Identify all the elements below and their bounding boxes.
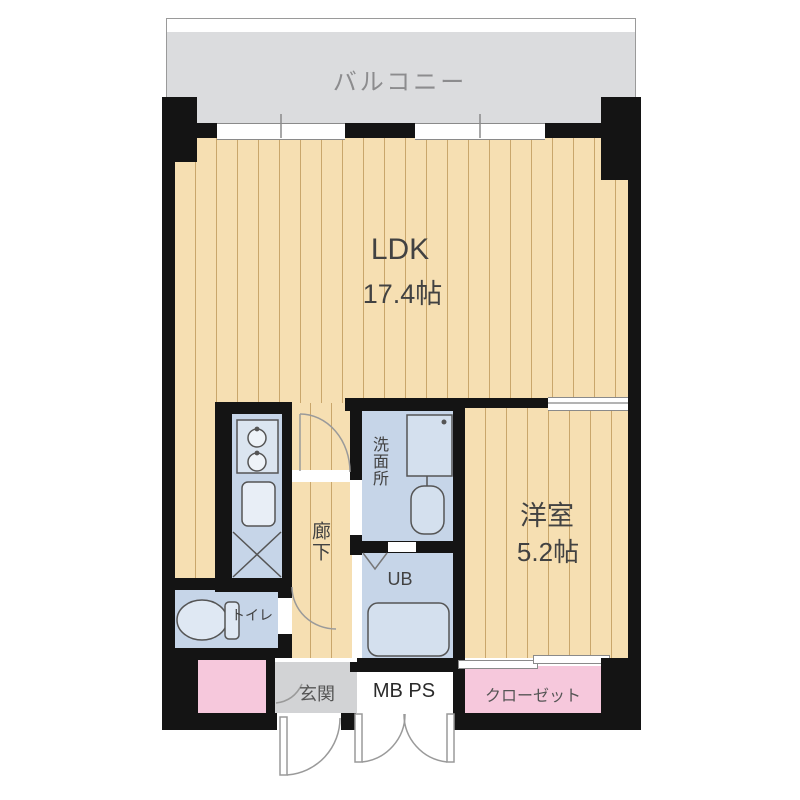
washroom-label: 洗面所 xyxy=(366,436,390,487)
partition-ldk-western xyxy=(453,398,550,408)
mbps-door-gap xyxy=(356,713,453,730)
wall-left xyxy=(162,97,175,730)
unit-bath-label: UB xyxy=(370,569,430,590)
corner-top-left xyxy=(162,97,197,162)
corner-top-left-step xyxy=(197,123,217,138)
corner-top-right xyxy=(601,97,641,180)
entrance-label: 玄関 xyxy=(279,680,355,706)
front-wall-segment-mid xyxy=(345,123,415,138)
toilet-label: トイレ xyxy=(222,605,282,625)
toilet-top-wall xyxy=(162,578,292,590)
entrance-left-wall xyxy=(266,660,275,713)
unit-bath-door-gap xyxy=(388,542,416,552)
mbps-label: MB PS xyxy=(355,680,453,703)
western-room-label: 洋室 xyxy=(477,494,617,533)
hallway-door-threshold xyxy=(292,470,350,482)
ldk-label: LDK xyxy=(330,233,470,267)
hallway-label: 廊下 xyxy=(306,521,333,563)
balcony-label: バルコニー xyxy=(300,62,500,97)
floor-plan: バルコニー LDK 17.4帖 洋室 5.2帖 廊下 洗面所 UB MB PS … xyxy=(0,0,800,800)
corner-bottom-right xyxy=(601,658,641,730)
balcony-window-left xyxy=(217,123,345,140)
ldk-size-label: 17.4帖 xyxy=(330,272,475,311)
ldk-left-strip-floor xyxy=(175,403,215,578)
closet-label: クローゼット xyxy=(463,682,603,706)
balcony-window-right xyxy=(415,123,545,140)
partition-sliding-door xyxy=(548,397,628,411)
wall-right xyxy=(628,97,641,730)
entrance-hall-threshold xyxy=(275,658,357,662)
corner-bottom-left-block xyxy=(162,660,198,730)
washroom-left-wall-upper xyxy=(350,411,362,480)
unit-bath-bottom-wall xyxy=(350,658,465,672)
washroom-top-wall xyxy=(345,398,465,411)
entrance-door-gap xyxy=(277,713,341,730)
closet-sliding-door-left xyxy=(458,660,538,669)
closet-sliding-door-right xyxy=(533,655,610,664)
washroom-door-gap xyxy=(350,480,362,535)
toilet-bottom-wall xyxy=(162,648,280,660)
kitchen-counter xyxy=(232,414,282,578)
western-room-size-label: 5.2帖 xyxy=(477,532,619,569)
front-wall-segment-right xyxy=(545,123,601,138)
